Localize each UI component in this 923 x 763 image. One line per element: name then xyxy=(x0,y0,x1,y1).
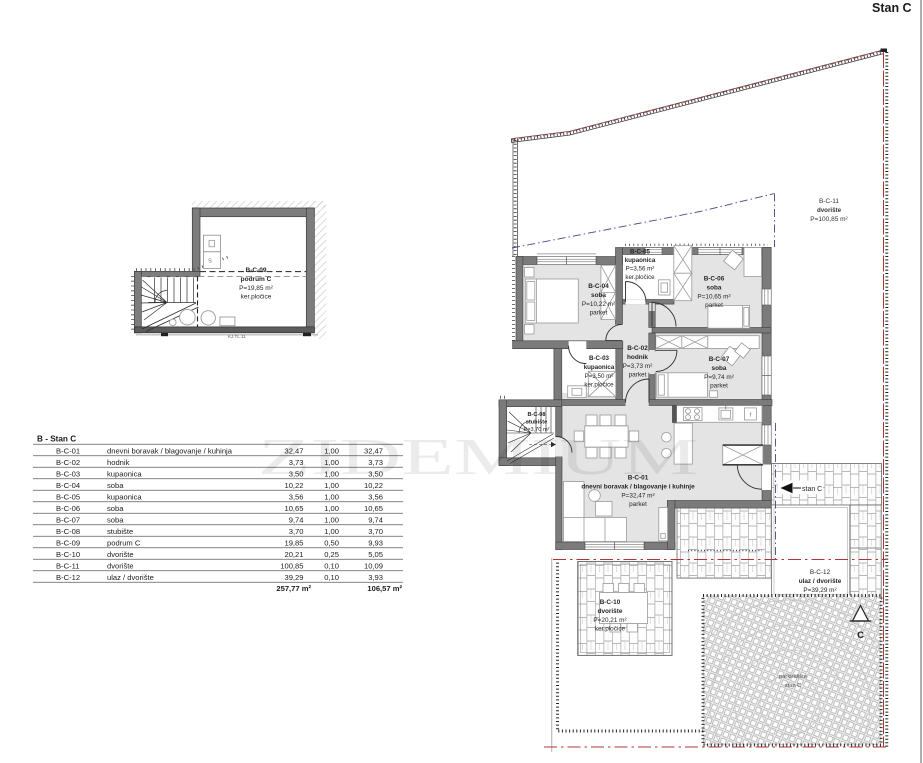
svg-text:S: S xyxy=(208,259,212,265)
svg-text:B-C-09: B-C-09 xyxy=(56,538,80,547)
svg-text:soba: soba xyxy=(107,515,124,524)
svg-text:5,05: 5,05 xyxy=(368,550,383,559)
svg-text:kupaonica: kupaonica xyxy=(107,492,142,501)
svg-text:parket: parket xyxy=(705,302,723,309)
svg-text:B-C-11: B-C-11 xyxy=(56,561,80,570)
svg-text:ker.pločice: ker.pločice xyxy=(241,294,272,301)
svg-text:ulaz / dvorište: ulaz / dvorište xyxy=(799,578,842,585)
svg-text:P=100,85 m²: P=100,85 m² xyxy=(810,216,848,223)
svg-text:19,85: 19,85 xyxy=(284,538,303,547)
svg-text:podrum C: podrum C xyxy=(107,538,141,547)
svg-text:soba: soba xyxy=(591,292,606,299)
svg-text:B-C-04: B-C-04 xyxy=(588,283,609,290)
svg-text:P=10,65 m²: P=10,65 m² xyxy=(697,294,730,301)
svg-text:3,70: 3,70 xyxy=(289,527,304,536)
svg-text:1,00: 1,00 xyxy=(324,492,339,501)
svg-text:soba: soba xyxy=(707,285,722,292)
svg-text:stan C: stan C xyxy=(785,683,802,689)
svg-text:100,85: 100,85 xyxy=(280,561,303,570)
svg-text:20,21: 20,21 xyxy=(284,550,303,559)
svg-text:dvorište: dvorište xyxy=(817,207,842,214)
svg-text:hodnik: hodnik xyxy=(627,354,648,361)
svg-text:stubište: stubište xyxy=(526,420,547,426)
svg-text:kupaonica: kupaonica xyxy=(584,364,615,371)
svg-text:P=32,47 m²: P=32,47 m² xyxy=(621,493,654,500)
svg-text:9,74: 9,74 xyxy=(289,515,304,524)
svg-text:dvorište: dvorište xyxy=(598,608,623,615)
svg-text:0,10: 0,10 xyxy=(324,573,339,582)
svg-text:dnevni boravak / blagovanje /: dnevni boravak / blagovanje / kuhinja xyxy=(107,446,233,455)
svg-text:10,65: 10,65 xyxy=(284,504,303,513)
svg-text:parkiralište: parkiralište xyxy=(779,674,807,680)
svg-text:Stan C: Stan C xyxy=(872,1,912,15)
svg-text:ker.pločice: ker.pločice xyxy=(625,274,655,281)
svg-text:9,74: 9,74 xyxy=(368,515,383,524)
svg-text:P=20,21 m²: P=20,21 m² xyxy=(593,617,626,624)
svg-text:B-C-06: B-C-06 xyxy=(56,504,80,513)
svg-text:kupaonica: kupaonica xyxy=(625,257,656,264)
svg-text:ulaz / dvorište: ulaz / dvorište xyxy=(107,573,154,582)
svg-text:10,09: 10,09 xyxy=(364,561,383,570)
svg-text:stan C: stan C xyxy=(802,486,822,493)
svg-text:B - Stan C: B - Stan C xyxy=(37,435,76,444)
svg-text:3,93: 3,93 xyxy=(368,573,383,582)
svg-text:P=19,85 m²: P=19,85 m² xyxy=(239,285,274,292)
svg-text:soba: soba xyxy=(107,504,124,513)
svg-text:B-C-02: B-C-02 xyxy=(627,345,648,352)
svg-text:B-C-09: B-C-09 xyxy=(246,267,267,274)
svg-text:106,57 m²: 106,57 m² xyxy=(367,584,402,593)
svg-text:parket: parket xyxy=(629,501,647,508)
svg-text:3,70: 3,70 xyxy=(368,527,383,536)
svg-text:soba: soba xyxy=(712,365,727,372)
svg-text:B-C-10: B-C-10 xyxy=(600,599,621,606)
svg-text:0,10: 0,10 xyxy=(324,561,339,570)
svg-text:B-C-08: B-C-08 xyxy=(527,412,545,418)
svg-text:dvorište: dvorište xyxy=(107,561,134,570)
svg-text:B-C-02: B-C-02 xyxy=(56,458,80,467)
svg-text:0,50: 0,50 xyxy=(324,538,339,547)
svg-text:P=10,22 m²: P=10,22 m² xyxy=(582,301,615,308)
svg-text:B-C-07: B-C-07 xyxy=(709,356,730,363)
svg-text:B-C-11: B-C-11 xyxy=(819,198,839,205)
svg-text:B-C-07: B-C-07 xyxy=(56,515,80,524)
svg-text:3,56: 3,56 xyxy=(368,492,383,501)
svg-text:257,77 m²: 257,77 m² xyxy=(276,584,311,593)
svg-text:KJ.TL.11: KJ.TL.11 xyxy=(228,334,246,339)
svg-text:P=9,74 m²: P=9,74 m² xyxy=(704,374,734,381)
svg-text:podrum C: podrum C xyxy=(241,276,272,283)
svg-text:stubište: stubište xyxy=(107,527,133,536)
svg-text:B-C-05: B-C-05 xyxy=(630,249,650,256)
svg-text:parket: parket xyxy=(629,372,647,379)
svg-text:ker.pločice: ker.pločice xyxy=(595,626,626,633)
svg-text:B-C-10: B-C-10 xyxy=(56,550,80,559)
svg-text:P=39,29 m²: P=39,29 m² xyxy=(803,587,836,594)
svg-text:B-C-12: B-C-12 xyxy=(56,573,80,582)
svg-text:parket: parket xyxy=(590,310,608,317)
svg-text:B-C-08: B-C-08 xyxy=(56,527,80,536)
svg-text:1,00: 1,00 xyxy=(324,527,339,536)
svg-text:9,93: 9,93 xyxy=(368,538,383,547)
svg-text:parket: parket xyxy=(710,383,728,390)
svg-text:10,65: 10,65 xyxy=(364,504,383,513)
svg-text:P=3,73 m²: P=3,73 m² xyxy=(623,363,653,370)
svg-text:soba: soba xyxy=(107,481,124,490)
svg-text:B-C-03: B-C-03 xyxy=(589,355,609,362)
svg-text:dvorište: dvorište xyxy=(107,550,134,559)
svg-text:B-C-04: B-C-04 xyxy=(56,481,80,490)
svg-text:B-C-05: B-C-05 xyxy=(56,492,80,501)
svg-text:1,00: 1,00 xyxy=(324,504,339,513)
svg-text:1,00: 1,00 xyxy=(324,515,339,524)
svg-text:0,25: 0,25 xyxy=(324,550,339,559)
svg-text:C: C xyxy=(857,630,864,641)
svg-text:ker.pločice: ker.pločice xyxy=(584,382,614,389)
svg-text:B-C-03: B-C-03 xyxy=(56,469,80,478)
svg-text:kupaonica: kupaonica xyxy=(107,469,142,478)
svg-text:ZIDEMIUM: ZIDEMIUM xyxy=(258,429,698,486)
svg-text:B-C-01: B-C-01 xyxy=(56,446,80,455)
svg-text:hodnik: hodnik xyxy=(107,458,130,467)
svg-text:P=3,56 m²: P=3,56 m² xyxy=(626,266,655,273)
svg-text:39,29: 39,29 xyxy=(284,573,303,582)
svg-text:P=3,50 m²: P=3,50 m² xyxy=(585,373,614,380)
svg-text:B-C-12: B-C-12 xyxy=(810,569,831,576)
svg-text:3,56: 3,56 xyxy=(289,492,304,501)
svg-text:B-C-06: B-C-06 xyxy=(704,276,725,283)
